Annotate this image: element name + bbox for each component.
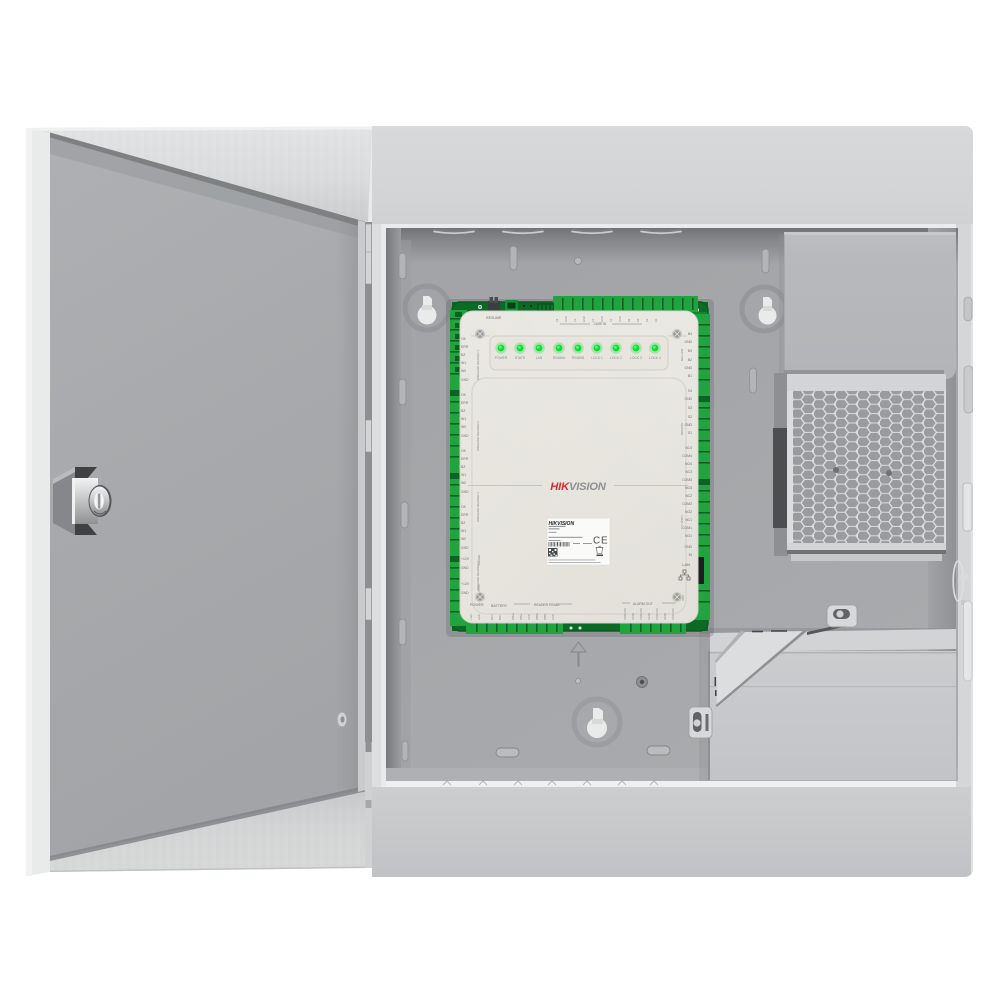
svg-text:LOCK 2: LOCK 2 [610,356,622,360]
svg-text:B3: B3 [688,349,692,353]
svg-text:NO4: NO4 [685,462,692,466]
svg-text:BZ: BZ [461,409,465,413]
svg-text:NO1/CON: NO1/CON [671,608,675,620]
svg-text:GND: GND [477,614,481,620]
svg-text:B1: B1 [688,374,692,378]
svg-text:S2: S2 [688,415,692,419]
svg-text:W1: W1 [461,361,466,365]
svg-text:COM3: COM3 [682,478,692,482]
svg-text:D4: D4 [627,318,631,322]
svg-text:RS485A: RS485A [553,356,566,360]
svg-text:OK: OK [461,505,467,509]
svg-text:LOCK 3: LOCK 3 [630,356,642,360]
svg-text:LOCK 1-4: LOCK 1-4 [680,515,684,529]
svg-text:BAT+: BAT+ [490,613,494,620]
svg-text:FIRE: FIRE [681,595,685,601]
svg-text:ERR: ERR [461,457,469,461]
svg-text:HIKVISION: HIKVISION [550,481,607,493]
svg-text:C1: C1 [609,318,613,322]
svg-text:LOCK: LOCK [477,584,481,591]
svg-text:BZ: BZ [461,353,465,357]
svg-text:D3: D3 [636,318,640,322]
svg-text:GND: GND [564,316,568,322]
svg-text:GND: GND [684,366,692,370]
svg-text:485B-: 485B- [543,613,547,620]
svg-text:GND: GND [551,614,555,620]
svg-text:S4: S4 [688,389,692,393]
svg-text:WIEGAND READER 2: WIEGAND READER 2 [476,421,480,452]
svg-text:OK: OK [461,449,467,453]
svg-text:BAT-: BAT- [498,614,502,620]
svg-text:LOCK 1: LOCK 1 [591,356,603,360]
svg-text:D1: D1 [654,318,658,322]
svg-text:NO3/CON: NO3/CON [639,608,643,620]
svg-text:+12V: +12V [461,582,470,586]
svg-text:CE: CE [593,536,609,547]
svg-text:RS485B: RS485B [572,356,585,360]
svg-text:READER RS485: READER RS485 [534,603,560,607]
svg-text:W0: W0 [461,369,466,373]
svg-text:GND: GND [461,434,469,438]
svg-text:GND: GND [684,545,692,549]
svg-text:WIEGAND READER 3: WIEGAND READER 3 [476,492,480,523]
svg-text:S1: S1 [688,431,692,435]
svg-text:GND: GND [618,316,622,322]
svg-text:RESUME: RESUME [486,316,502,320]
svg-text:B4: B4 [688,332,692,336]
svg-text:NC2: NC2 [685,494,692,498]
svg-text:GND: GND [684,397,692,401]
svg-text:ERR: ERR [461,345,469,349]
svg-text:COM4: COM4 [682,454,692,458]
svg-text:+12V: +12V [461,557,470,561]
svg-text:GND: GND [461,566,469,570]
svg-text:W0: W0 [461,481,466,485]
svg-text:D2: D2 [645,318,649,322]
svg-text:WIEGAND READER 1: WIEGAND READER 1 [476,350,480,381]
svg-text:GND: GND [461,490,469,494]
svg-text:GND: GND [600,316,604,322]
svg-text:POWER: POWER [495,356,508,360]
svg-text:POWER: POWER [470,603,484,607]
svg-text:ALARM OUT: ALARM OUT [633,602,653,606]
svg-text:S3: S3 [688,406,692,410]
svg-text:GND: GND [461,546,469,550]
svg-text:OK: OK [461,337,467,341]
svg-text:GND: GND [684,423,692,427]
svg-text:ERR: ERR [461,513,469,517]
svg-text:GND3: GND3 [631,612,635,620]
svg-text:OK: OK [461,393,467,397]
svg-text:485A+: 485A+ [511,612,515,620]
svg-text:485A-: 485A- [519,613,523,620]
svg-text:IN: IN [689,553,693,557]
svg-text:GND: GND [461,591,469,595]
svg-text:B2: B2 [688,358,692,362]
svg-text:BUTTON: BUTTON [680,349,684,361]
svg-text:BATTERY: BATTERY [491,604,508,608]
svg-text:485B+: 485B+ [535,612,539,620]
svg-text:NO4/CON: NO4/CON [623,608,627,620]
svg-text:NO3: NO3 [685,486,692,490]
svg-text:W1: W1 [461,417,466,421]
svg-text:NO2/CON: NO2/CON [655,608,659,620]
svg-text:COM2: COM2 [682,502,692,506]
svg-text:W0: W0 [461,537,466,541]
svg-text:C4: C4 [555,318,559,322]
svg-text:NC3: NC3 [685,470,692,474]
svg-text:NC4: NC4 [685,446,692,450]
svg-text:W1: W1 [461,473,466,477]
svg-text:W0: W0 [461,425,466,429]
svg-text:LAN: LAN [536,356,543,360]
svg-text:NO1: NO1 [685,534,692,538]
svg-text:GND: GND [461,378,469,382]
svg-text:BZ: BZ [461,521,465,525]
svg-text:GND: GND [527,614,531,620]
svg-text:SENSOR: SENSOR [680,423,684,437]
svg-text:ERR: ERR [461,401,469,405]
svg-text:+12V: +12V [469,614,473,620]
svg-text:W1: W1 [461,529,466,533]
svg-text:STATE: STATE [515,356,526,360]
svg-text:C3: C3 [573,318,577,322]
svg-text:NO2: NO2 [685,510,692,514]
svg-text:LAN: LAN [682,562,690,567]
svg-text:C2: C2 [591,318,595,322]
svg-text:GND: GND [684,340,692,344]
svg-text:GND: GND [582,316,586,322]
svg-text:GND2: GND2 [647,612,651,620]
svg-text:READER: READER [477,554,481,565]
svg-text:BZ: BZ [461,465,465,469]
svg-text:GND1: GND1 [663,612,667,620]
svg-text:NC1: NC1 [685,518,692,522]
svg-text:LOCK 4: LOCK 4 [649,356,661,360]
